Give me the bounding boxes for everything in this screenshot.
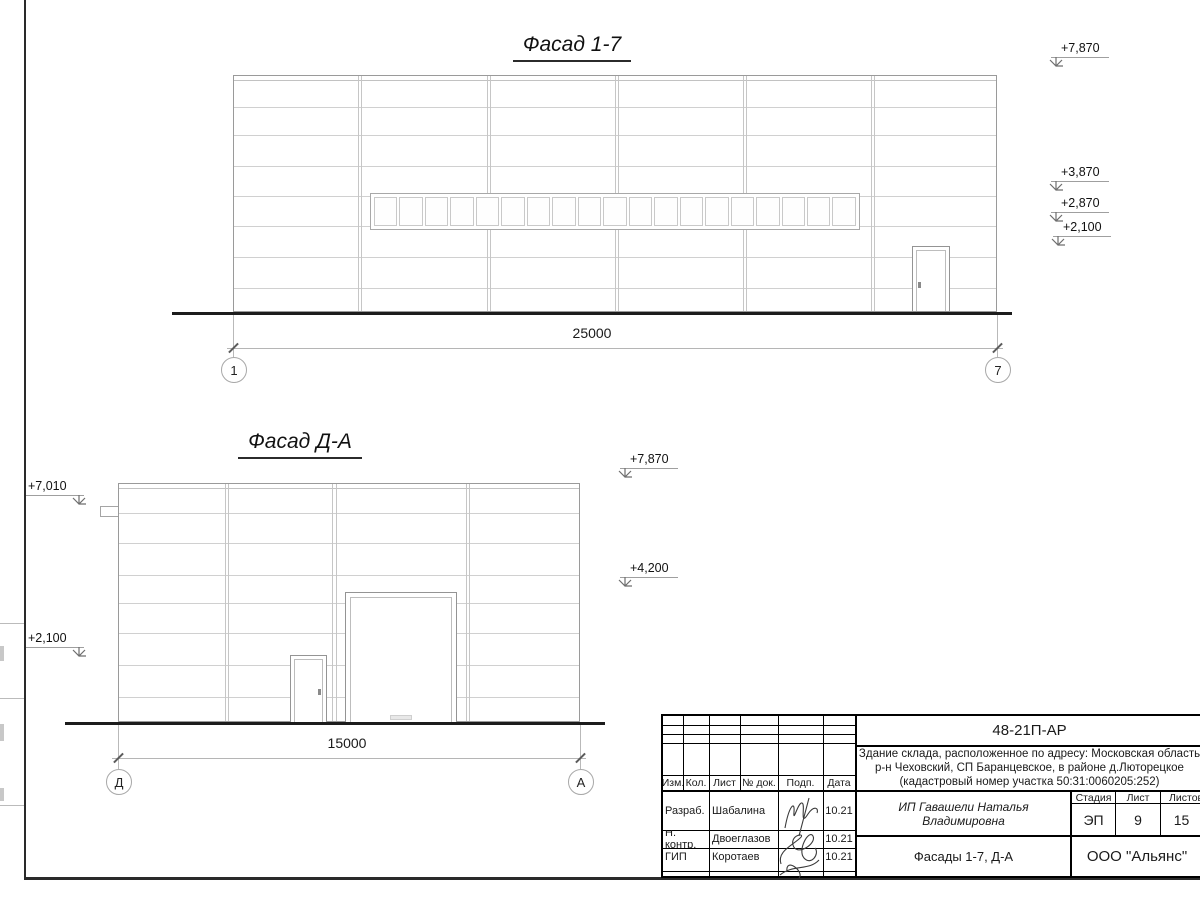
elevation-arrow-icon [617,468,633,484]
tb-col-doc: № док. [740,775,778,790]
axis-label: 1 [230,363,237,378]
tb-name-gip: Коротаев [712,848,778,866]
tb-client: ИП Гавашели Наталья Владимировна [857,792,1070,835]
extension-line [118,725,119,769]
elevation-arrow-icon [71,647,87,663]
door-leaf [916,250,946,311]
elevation-mark: +2,870 [1051,196,1109,213]
extension-line [997,315,998,357]
tb-sheets-value: 15 [1161,804,1200,835]
axis-bubble-a: А [568,769,594,795]
column-strip [358,76,362,311]
tb-date-razrab: 10.21 [823,792,855,830]
tb-sheet-value: 9 [1116,804,1160,835]
tb-description-line2: р-н Чеховский, СП Баранцевское, в районе… [857,761,1200,775]
elevation-mark: +2,100 [1053,220,1111,237]
dimension-text: 25000 [522,325,662,341]
dimension-text: 15000 [277,735,417,751]
tb-col-izm: Изм. [663,775,683,790]
elevation-mark: +2,100 [26,631,84,648]
tb-role-nkontr: Н. контр. [665,830,709,848]
column-strip [466,484,470,721]
margin-strip-divider [0,698,24,699]
ribbon-window [370,193,860,230]
elevation-arrow-icon [617,577,633,593]
elevation-value: +3,870 [1051,165,1109,182]
title-block: Изм. Кол. Лист № док. Подп. Дата Разраб.… [661,714,1200,878]
tb-col-kol: Кол. [683,775,709,790]
door-handle [318,689,321,695]
tb-col-data: Дата [823,775,855,790]
extension-line [233,315,234,357]
margin-strip-divider [0,805,24,806]
elevation-value: +7,010 [26,479,84,496]
tb-role-razrab: Разраб. [665,792,709,830]
door [912,246,950,312]
elevation-value: +2,870 [1051,196,1109,213]
panel-joint [119,575,579,576]
axis-label: А [577,775,586,790]
elevation-arrow-icon [1048,181,1064,197]
tb-role-gip: ГИП [665,848,709,866]
elevation-value: +4,200 [620,561,678,578]
margin-strip-text-fragment [0,788,4,801]
axis-label: Д [115,775,124,790]
ground-line [172,312,1012,315]
tb-line [663,734,855,735]
signature-nkontr-gip [775,826,823,880]
column-strip [225,484,229,721]
sheet-frame-left [24,0,26,878]
axis-bubble-d: Д [106,769,132,795]
axis-bubble-1: 1 [221,357,247,383]
tb-col-podp: Подп. [778,775,823,790]
elevation-value: +7,870 [1051,41,1109,58]
facade-1-7-elevation [233,75,997,312]
tb-name-razrab: Шабалина [712,792,778,830]
tb-organization: ООО "Альянс" [1072,837,1200,876]
wall-protrusion [100,506,120,517]
tb-col-list: Лист [709,775,740,790]
tb-description: Здание склада, расположенное по адресу: … [857,747,1200,790]
tb-line [663,743,855,744]
tb-sheets-label: Листов [1161,792,1200,803]
ground-line [65,722,605,725]
parapet-line [119,488,579,489]
tb-date-gip: 10.21 [823,848,855,866]
tb-line [663,725,855,726]
axis-label: 7 [994,363,1001,378]
tb-stage-value: ЭП [1072,804,1115,835]
drawing-sheet: Фасад 1-7 25000 1 7 [0,0,1200,900]
elevation-mark: +4,200 [620,561,678,578]
facade-d-a-title: Фасад Д-А [220,430,380,459]
elevation-mark: +7,010 [26,479,84,496]
dimension-line [227,348,1003,349]
facade-1-7-title: Фасад 1-7 [492,33,652,62]
tb-line [663,871,855,872]
door-handle [918,282,921,288]
elevation-arrow-icon [1050,236,1066,252]
tb-sheet-label: Лист [1116,792,1160,803]
elevation-arrow-icon [71,495,87,511]
column-strip [332,484,337,721]
elevation-value: +7,870 [620,452,678,469]
gate-leaf [350,597,452,723]
panel-joint [119,543,579,544]
tb-sheet-title: Фасады 1-7, Д-А [857,837,1070,876]
tb-doc-number: 48-21П-АР [857,716,1200,745]
tb-description-line3: (кадастровый номер участка 50:31:0060205… [857,775,1200,789]
margin-strip-text-fragment [0,646,4,661]
facade-1-7-title-text: Фасад 1-7 [513,33,631,62]
margin-strip-text-fragment [0,724,4,741]
door [290,655,327,723]
extension-line [580,725,581,769]
elevation-mark: +3,870 [1051,165,1109,182]
panel-joint [119,513,579,514]
tb-line [709,716,710,876]
tb-date-nkontr: 10.21 [823,830,855,848]
elevation-value: +2,100 [1053,220,1111,237]
elevation-mark: +7,870 [1051,41,1109,58]
gate [345,592,457,723]
elevation-arrow-icon [1048,57,1064,73]
axis-bubble-7: 7 [985,357,1011,383]
facade-d-a-elevation [118,483,580,722]
facade-d-a-title-text: Фасад Д-А [238,430,362,459]
elevation-value: +2,100 [26,631,84,648]
tb-name-nkontr: Двоеглазов [712,830,778,848]
elevation-mark: +7,870 [620,452,678,469]
tb-description-line1: Здание склада, расположенное по адресу: … [857,747,1200,761]
margin-strip-divider [0,623,24,624]
column-strip [871,76,875,311]
dimension-line [112,758,586,759]
gate-plate [390,715,412,720]
tb-stage-label: Стадия [1072,792,1115,803]
